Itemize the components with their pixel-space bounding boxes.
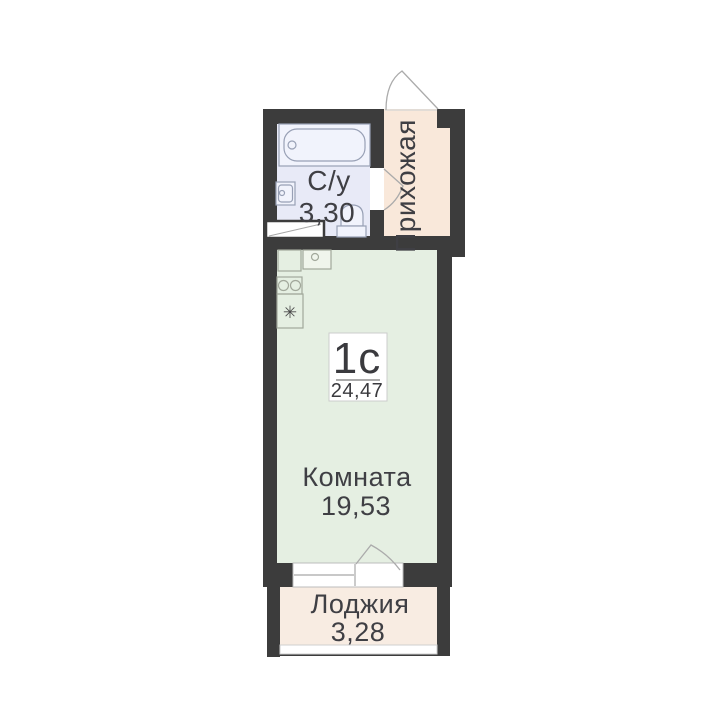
wall-room-right: [437, 250, 452, 587]
wall-left: [263, 109, 277, 587]
bathroom-label: С/у: [307, 165, 351, 196]
wall-bottom-right-seg: [403, 563, 452, 587]
bathtub: [279, 124, 370, 166]
living-room-area: 19,53: [321, 491, 391, 521]
floorplan-canvas: ✳ 1с 24,47 С/у 3,30 Прихожая Комната 19,…: [0, 0, 726, 726]
wall-bathroom-right-upper: [370, 124, 384, 168]
loggia-label: Лоджия: [311, 589, 410, 619]
unit-type-label: 1с: [333, 334, 381, 383]
wall-loggia-left: [267, 585, 280, 657]
wall-loggia-right: [437, 585, 450, 655]
entrance-door-swing: [386, 71, 438, 110]
floorplan-drawing: ✳ 1с 24,47 С/у 3,30 Прихожая Комната 19,…: [0, 0, 726, 726]
bathroom-door-gap: [370, 168, 384, 210]
wall-top: [263, 109, 384, 124]
washbasin: [276, 182, 295, 205]
loggia-area: 3,28: [331, 617, 386, 647]
living-room-label: Комната: [302, 462, 412, 492]
hallway-label: Прихожая: [390, 119, 421, 253]
wall-bottom-left-seg: [263, 563, 293, 587]
unit-total-area: 24,47: [331, 380, 384, 402]
unit-info-box: 1с 24,47: [329, 333, 387, 402]
kitchen-sink: [303, 250, 331, 269]
wall-hallway-right: [450, 109, 465, 257]
fridge-snowflake-icon: ✳: [283, 303, 297, 322]
wall-bathroom-right-lower: [370, 210, 384, 236]
bathroom-area: 3,30: [299, 197, 356, 228]
